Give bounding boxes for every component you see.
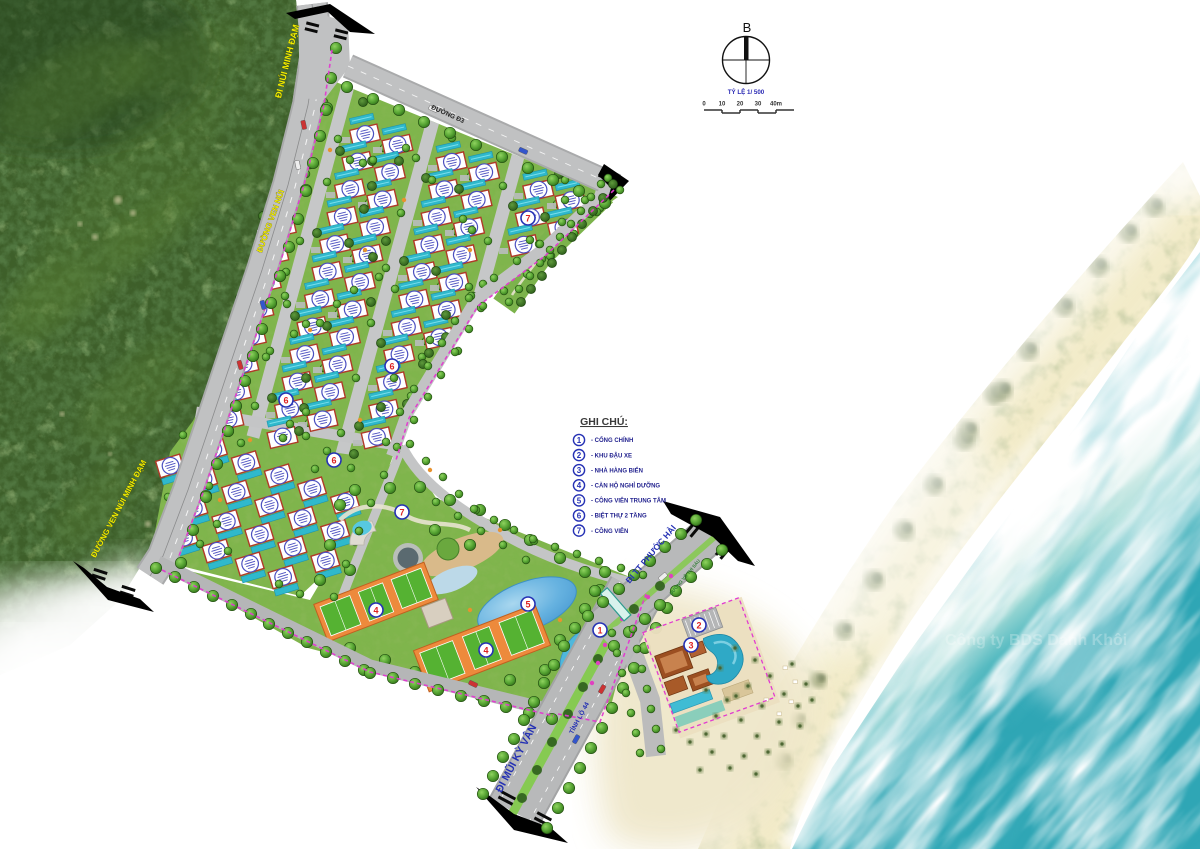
svg-text:40m: 40m xyxy=(770,102,782,108)
svg-text:1: 1 xyxy=(577,436,582,445)
svg-text:1: 1 xyxy=(597,626,602,636)
svg-text:6: 6 xyxy=(577,511,582,520)
svg-text:6: 6 xyxy=(331,456,336,466)
svg-text:Công ty BDS Danh Khôi: Công ty BDS Danh Khôi xyxy=(945,632,1127,649)
svg-text:7: 7 xyxy=(399,508,404,518)
svg-text:- CỔNG CHÍNH: - CỔNG CHÍNH xyxy=(591,436,633,444)
svg-text:7: 7 xyxy=(525,214,530,224)
svg-text:- NHÀ HÀNG BIỂN: - NHÀ HÀNG BIỂN xyxy=(591,467,643,474)
svg-text:- CÔNG VIÊN: - CÔNG VIÊN xyxy=(591,527,628,535)
svg-text:6: 6 xyxy=(389,362,394,372)
svg-text:30: 30 xyxy=(755,102,762,108)
svg-text:4: 4 xyxy=(373,606,378,616)
svg-text:10: 10 xyxy=(719,102,726,108)
svg-text:6: 6 xyxy=(283,396,288,406)
svg-text:4: 4 xyxy=(483,646,488,656)
svg-text:- BIỆT THỰ 2 TẦNG: - BIỆT THỰ 2 TẦNG xyxy=(591,512,647,520)
svg-text:B: B xyxy=(743,20,752,35)
svg-text:20: 20 xyxy=(737,102,744,108)
svg-text:5: 5 xyxy=(577,496,582,505)
svg-text:0: 0 xyxy=(702,102,706,108)
svg-text:- CĂN HỘ NGHỈ DƯỠNG: - CĂN HỘ NGHỈ DƯỠNG xyxy=(591,482,660,490)
svg-text:2: 2 xyxy=(696,621,701,631)
svg-text:TỶ LỆ 1/ 500: TỶ LỆ 1/ 500 xyxy=(728,88,765,96)
svg-text:4: 4 xyxy=(577,481,582,490)
svg-text:GHI CHÚ:: GHI CHÚ: xyxy=(580,415,628,428)
svg-text:3: 3 xyxy=(577,466,582,475)
svg-text:- CÔNG VIÊN TRUNG TÂM: - CÔNG VIÊN TRUNG TÂM xyxy=(591,497,666,505)
svg-text:2: 2 xyxy=(577,451,582,460)
svg-text:5: 5 xyxy=(525,600,530,610)
svg-text:- KHU ĐẬU XE: - KHU ĐẬU XE xyxy=(591,452,632,459)
svg-text:7: 7 xyxy=(577,527,582,536)
svg-text:3: 3 xyxy=(688,641,693,651)
